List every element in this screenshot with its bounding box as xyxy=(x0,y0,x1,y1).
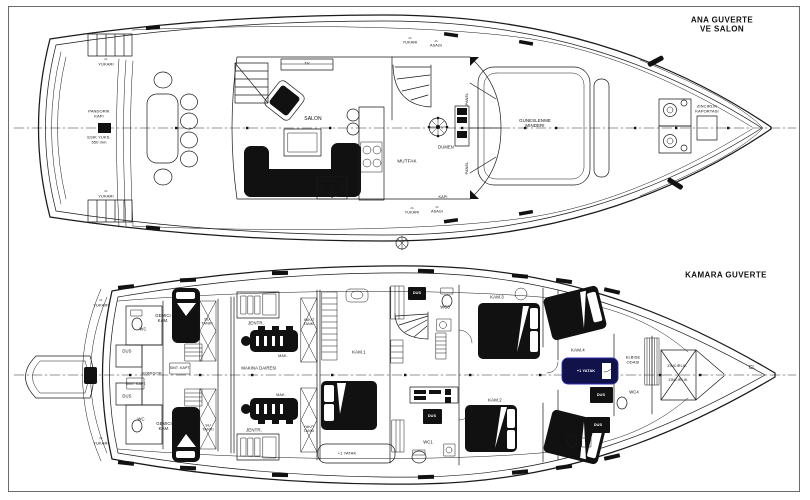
label-kamara-4: KAM.4 xyxy=(571,347,585,352)
label-yukari: ⇨ YUKARI xyxy=(93,436,109,445)
label-dus: DUS xyxy=(594,423,602,427)
label-su-tanki: SU TANKI xyxy=(202,424,213,433)
label-zincirlik: ZINCIRLIK xyxy=(668,378,687,382)
label-yakit-tanki: YAKIT TANKI xyxy=(304,318,315,326)
label-sintine-kapagi: SINT. KAPT. xyxy=(126,382,147,386)
label-guneslenme-minderi: GUNESLENME MINDERI xyxy=(519,118,551,128)
label-su-tanki: SU TANKI xyxy=(201,318,212,327)
label-asagi: ⇦ ASAGI xyxy=(431,206,443,215)
label-panel: PANEL xyxy=(465,162,469,175)
label-panel: PANEL xyxy=(465,93,469,106)
label-mutfak: MUTFAK xyxy=(397,158,416,163)
label-plus1-yatak: +1 YATAK xyxy=(338,452,357,457)
main-deck-title: ANA GUVERTE VE SALON xyxy=(691,16,753,35)
label-elbise-odasi: ELBISE ODASI xyxy=(626,355,641,364)
label-wc1: WC1 xyxy=(423,441,433,446)
label-makine: MAK. xyxy=(276,393,286,397)
label-dus: DUS xyxy=(122,350,131,355)
label-yukari: ⇨ YUKARI xyxy=(93,298,109,307)
label-makine: MAK. xyxy=(278,354,288,358)
label-koridor: KORIDOR xyxy=(142,372,161,377)
label-kapi: KAPI xyxy=(438,195,447,199)
label-kamara-3: KAM.3 xyxy=(490,294,504,299)
label-yukari: ⇨ YUKARI xyxy=(98,57,114,66)
label-wc: WC xyxy=(139,328,146,333)
label-zincirlik: ZINCIRLIK xyxy=(667,364,686,368)
label-dumen: DUMEN xyxy=(438,146,454,151)
label-pandorik-kapi: PANDORIK KAPI xyxy=(88,109,109,118)
label-kamara-2: KAM.2 xyxy=(488,397,502,402)
label-gemici-kamarasi: GEMICI KAM. xyxy=(155,314,171,324)
label-wc2: WC2 xyxy=(568,420,578,425)
label-asagi: ⇦ ASAGI xyxy=(430,40,442,49)
label-wc: WC xyxy=(137,418,144,423)
label-yukari: ⇨ YUKARI xyxy=(403,37,418,46)
label-makina-dairesi: MAKINA DAIRESI xyxy=(241,367,276,372)
label-esik-yuksekligi: ESIK YUKS. 550 mm xyxy=(87,135,110,144)
label-plus1-yatak: +1 YATAK xyxy=(577,369,595,373)
label-dus: DUS xyxy=(122,395,131,400)
label-yakit-tanki: YAKIT TANKI xyxy=(304,425,315,433)
label-yukari: ⇨ YUKARI xyxy=(405,207,420,216)
label-wc4: WC4 xyxy=(629,391,639,396)
label-layer: ANA GUVERTE VE SALON KAMARA GUVERTE ⇨ YU… xyxy=(0,0,810,500)
label-tv: TV xyxy=(304,62,309,67)
label-salon: SALON xyxy=(304,117,321,123)
label-gemici-kamarasi: GEMICI KAM. xyxy=(156,422,172,432)
label-dus: DUS xyxy=(597,393,605,397)
label-zincirlik-kaportasi: ZINCIRLIK KAPORTASI xyxy=(695,104,718,113)
label-centerline: CL xyxy=(749,366,756,372)
label-yukari: ⇨ YUKARI xyxy=(98,189,114,198)
label-sintine-kapagi: SINT. KAPT. xyxy=(170,366,191,370)
label-jeneratur: JENTR. xyxy=(246,427,262,432)
cabin-deck-title: KAMARA GUVERTE xyxy=(685,270,767,279)
ga-drawing-sheet: ANA GUVERTE VE SALON KAMARA GUVERTE ⇨ YU… xyxy=(0,0,810,500)
label-jeneratur: JENTR. xyxy=(248,320,264,325)
label-wc3: WC3 xyxy=(440,306,450,311)
label-dus: DUS xyxy=(428,414,436,418)
label-kamara-1: KAM.1 xyxy=(352,349,366,354)
label-dus: DUS xyxy=(413,291,421,295)
